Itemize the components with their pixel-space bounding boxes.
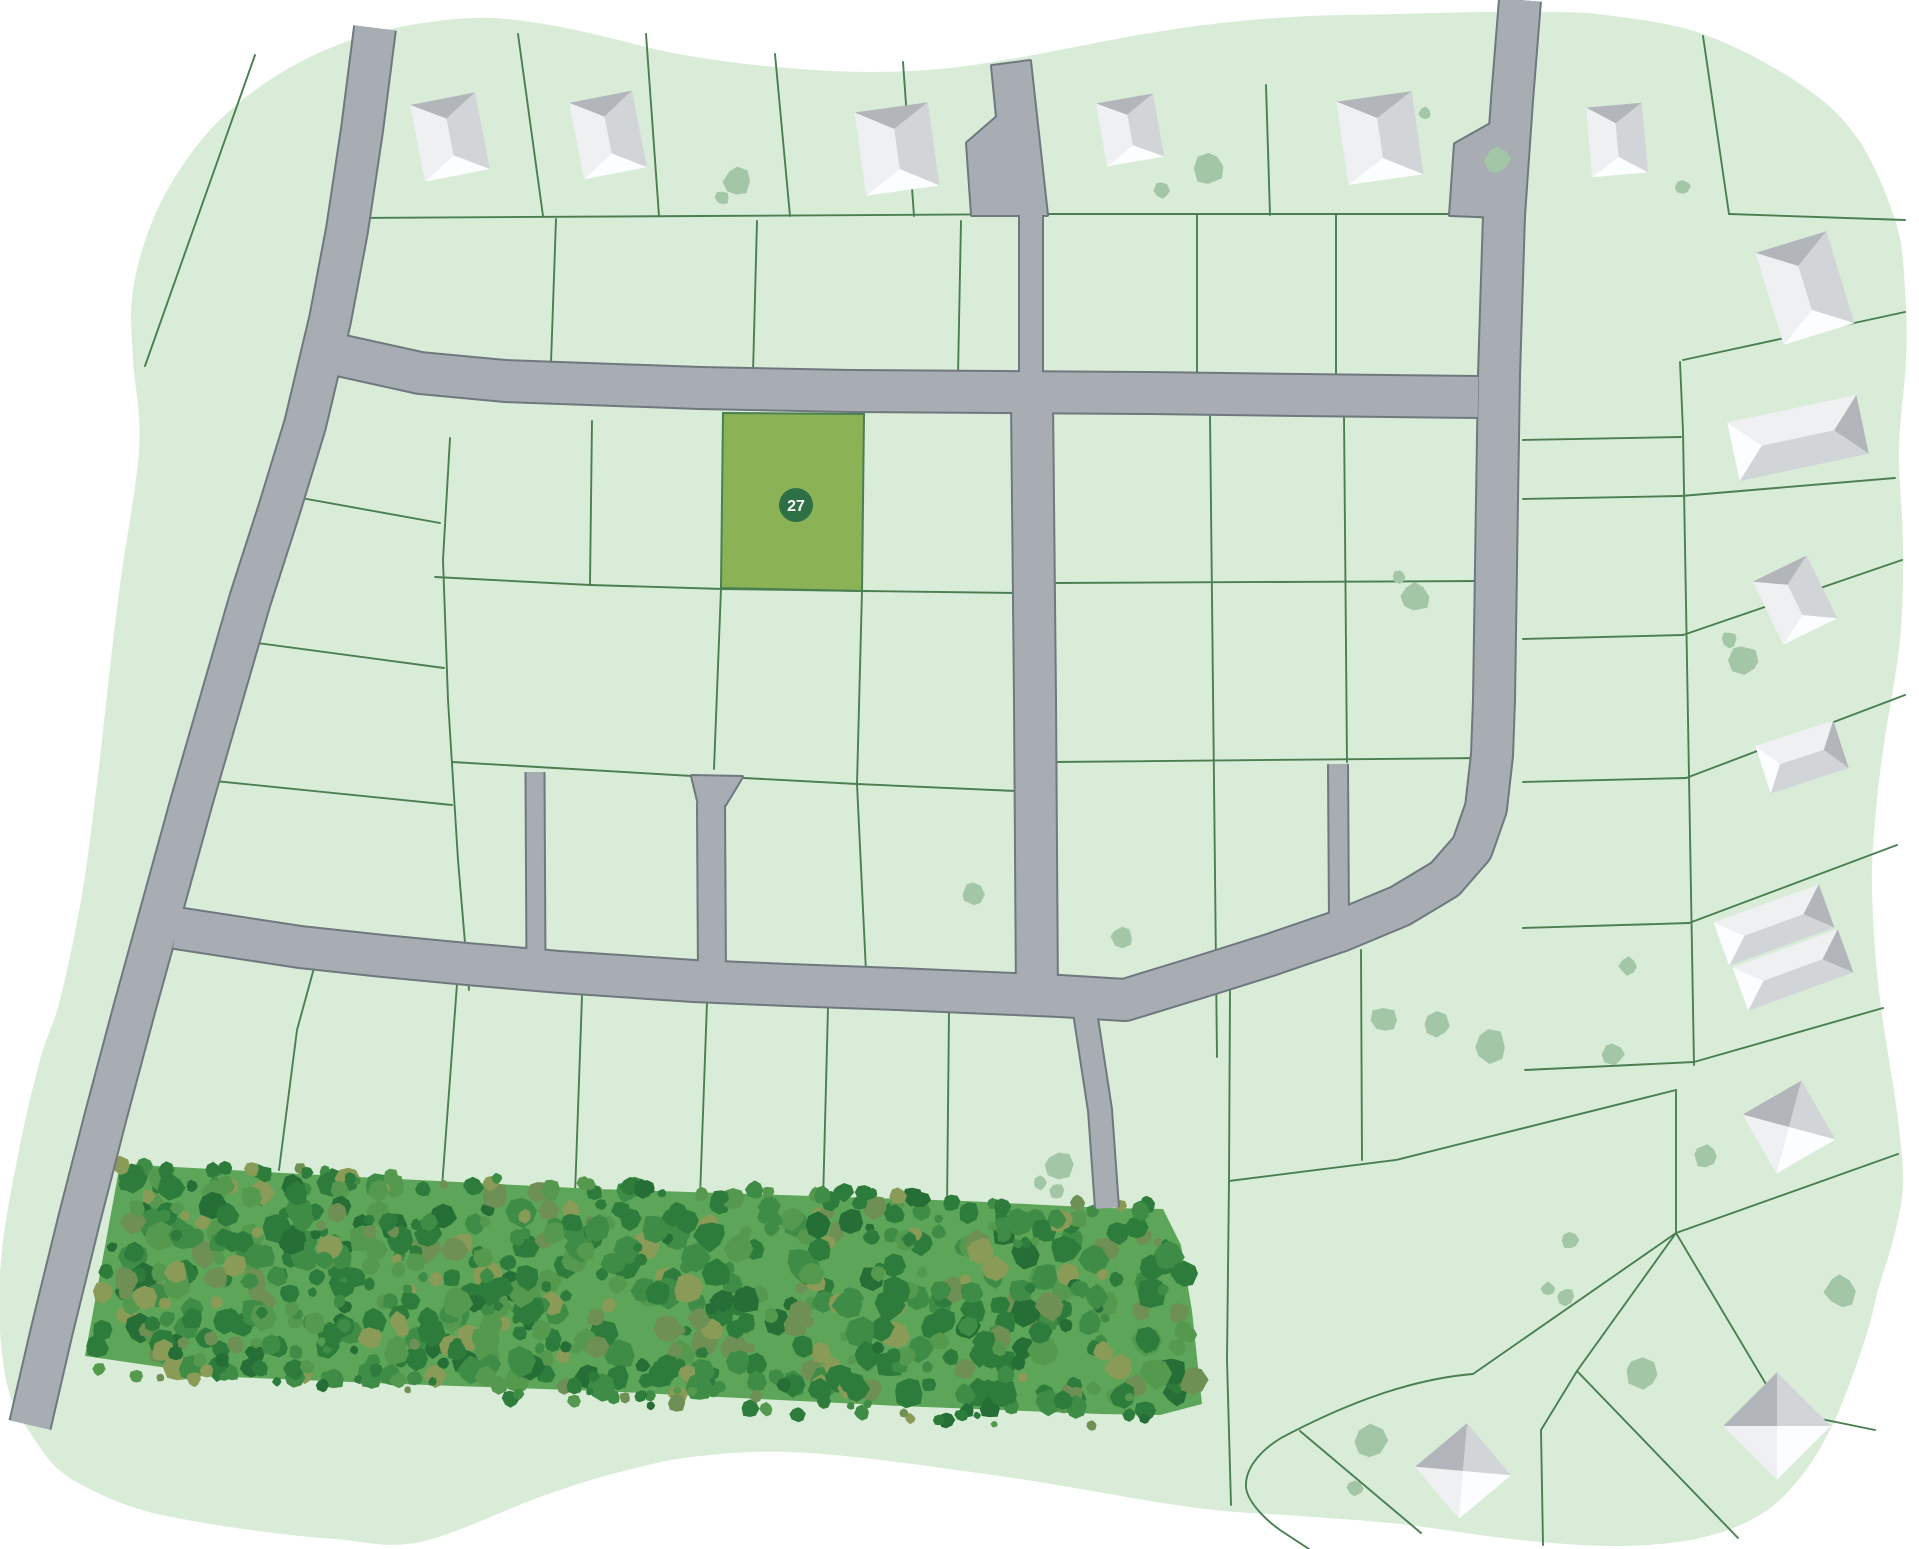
svg-text:27: 27: [787, 498, 805, 515]
